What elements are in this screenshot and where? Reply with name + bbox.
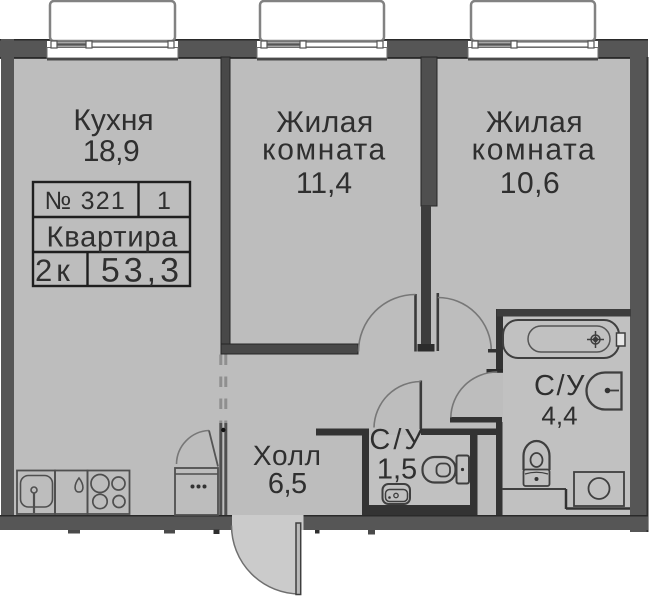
svg-text:комната: комната <box>472 133 597 166</box>
svg-text:№ 321: № 321 <box>45 187 126 215</box>
svg-text:Квартира: Квартира <box>47 222 179 254</box>
svg-text:комната: комната <box>262 133 387 166</box>
svg-text:53,3: 53,3 <box>101 252 183 290</box>
svg-text:11,4: 11,4 <box>296 167 352 200</box>
svg-text:Кухня: Кухня <box>73 104 153 137</box>
svg-text:1,5: 1,5 <box>377 454 417 486</box>
svg-text:18,9: 18,9 <box>83 135 139 168</box>
svg-text:С/У: С/У <box>534 370 586 402</box>
svg-text:4,4: 4,4 <box>541 401 577 431</box>
svg-text:6,5: 6,5 <box>268 468 307 500</box>
svg-text:10,6: 10,6 <box>500 167 560 200</box>
svg-text:1: 1 <box>157 187 171 215</box>
svg-text:Холл: Холл <box>253 440 322 471</box>
svg-text:2к: 2к <box>35 253 74 288</box>
svg-text:С/У: С/У <box>369 424 425 456</box>
